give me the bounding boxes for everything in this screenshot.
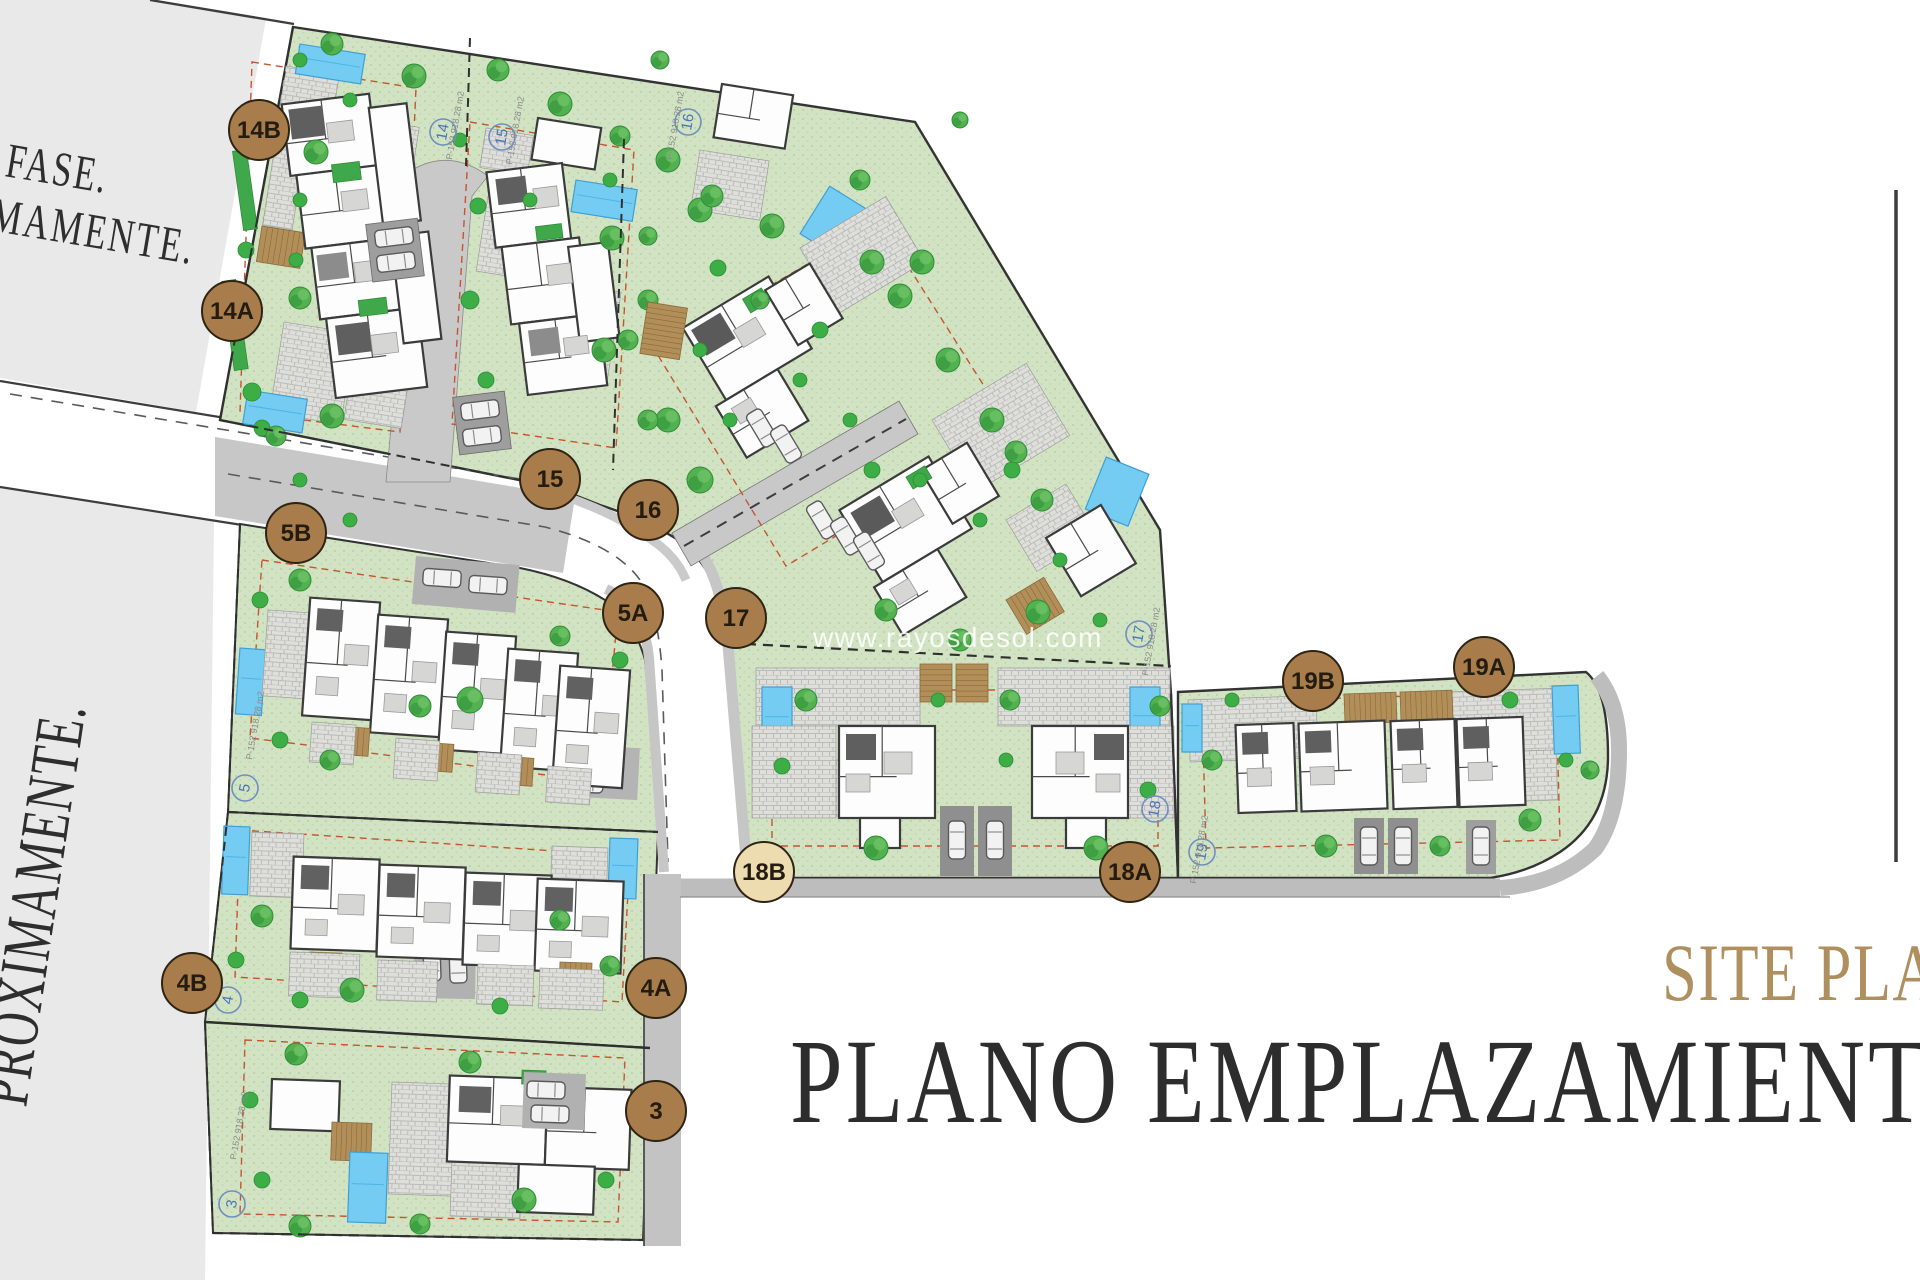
svg-text:5B: 5B — [281, 520, 312, 547]
svg-text:19A: 19A — [1462, 654, 1506, 681]
svg-text:18A: 18A — [1108, 859, 1152, 886]
svg-text:14A: 14A — [210, 298, 254, 325]
svg-text:4B: 4B — [177, 970, 208, 997]
svg-text:www.rayosdesol.com: www.rayosdesol.com — [812, 622, 1103, 653]
svg-text:15: 15 — [537, 466, 564, 493]
svg-text:PLANO EMPLAZAMIENTO: PLANO EMPLAZAMIENTO — [790, 1015, 1920, 1149]
svg-text:18: 18 — [1145, 799, 1165, 818]
svg-text:5A: 5A — [618, 600, 649, 627]
svg-text:19B: 19B — [1291, 668, 1335, 695]
svg-text:4A: 4A — [641, 975, 672, 1002]
svg-text:16: 16 — [635, 497, 662, 524]
svg-text:18B: 18B — [742, 859, 786, 886]
svg-text:3: 3 — [649, 1098, 662, 1125]
svg-text:SITE PLAN: SITE PLAN — [1662, 927, 1920, 1018]
svg-text:14B: 14B — [237, 117, 281, 144]
svg-text:17: 17 — [723, 605, 750, 632]
